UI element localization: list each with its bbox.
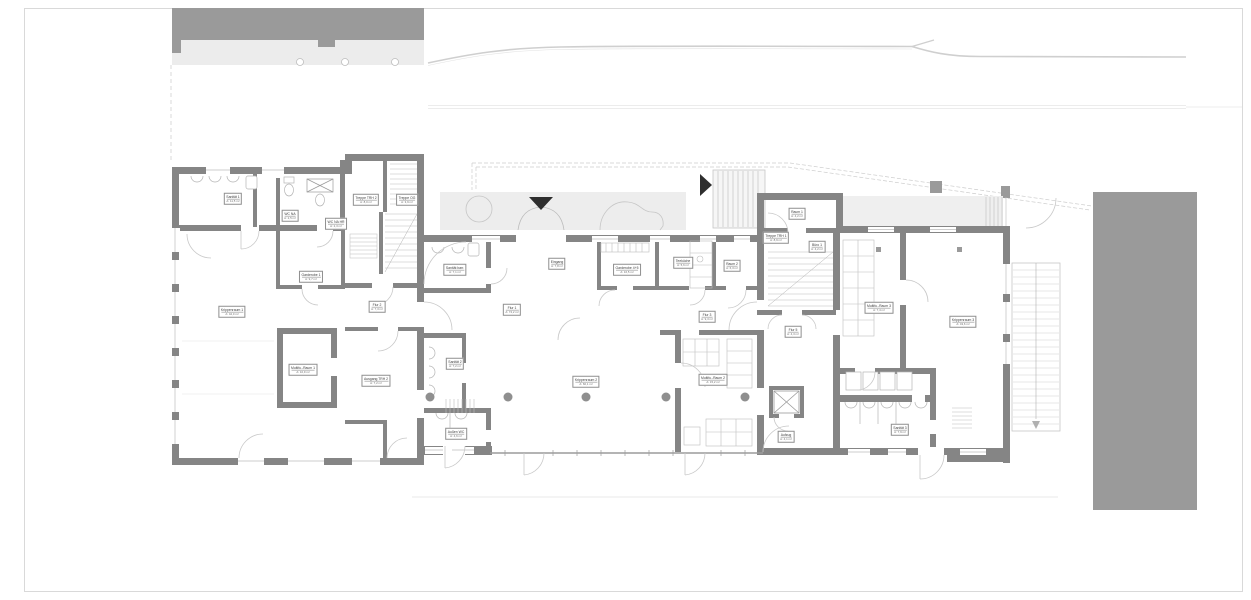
neighbor-building-right bbox=[1093, 192, 1197, 510]
exterior-stair-east bbox=[1012, 263, 1060, 431]
floor-plan-sheet: Sanität 1A: 11,5 m²WC NAA: 2,5 m²WC NA H… bbox=[0, 0, 1251, 600]
side-entrance-marker-icon bbox=[700, 174, 712, 196]
door-arcs bbox=[187, 213, 944, 479]
floor-plan-svg bbox=[0, 0, 1251, 600]
site-contour-lines bbox=[428, 40, 1242, 109]
kitchen-counter bbox=[690, 241, 712, 288]
stair-small-southeast bbox=[952, 408, 972, 428]
duct-shaft bbox=[307, 179, 333, 192]
north-terrace-band bbox=[840, 196, 1056, 230]
entrance-terrace bbox=[440, 192, 686, 230]
glass-wall-south bbox=[490, 450, 763, 456]
interior-faint-lines bbox=[182, 341, 274, 394]
neighbor-building-top bbox=[171, 8, 424, 163]
stair-trh1 bbox=[768, 252, 833, 306]
elevator-shaft bbox=[774, 391, 799, 413]
